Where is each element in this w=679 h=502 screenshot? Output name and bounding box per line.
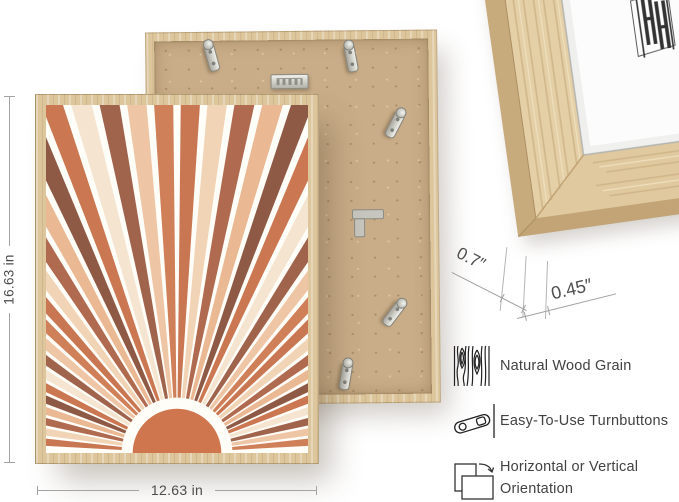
dimension-line [9,313,10,462]
feature-natural-wood-grain: Natural Wood Grain [452,346,678,386]
feature-label: Natural Wood Grain [500,355,672,377]
product-image: 0.7″ 0.45″ 16.63 in 12.63 in [0,0,679,502]
feature-label: Easy-To-Use Turnbuttons [500,410,672,432]
frame-depth-label: 0.7″ [453,243,489,274]
feature-orientation: Horizontal or Vertical Orientation [452,455,678,501]
dimension-line [38,490,139,491]
framed-sunburst-print [35,94,319,464]
dimension-tick [524,312,527,321]
bracket-plate [354,218,365,237]
dimension-tick [316,486,317,495]
frame-corner-closeup [474,0,679,249]
dimension-tick [4,462,15,463]
width-dimension: 12.63 in [37,482,317,498]
depth-dimension-line [452,272,527,311]
feature-list: Natural Wood Grain Easy-To-Use Turnbutto… [452,346,678,502]
corner-bracket-icon [352,209,382,237]
turnbutton-icon [452,403,500,439]
feature-turnbuttons: Easy-To-Use Turnbuttons [452,403,678,439]
feature-label: Horizontal or Vertical Orientation [500,456,672,501]
height-dimension: 16.63 in [1,96,17,463]
wood-grain-icon [452,346,500,386]
art-area [46,105,308,453]
dimension-line [215,490,316,491]
sunburst-artwork [46,105,308,453]
sawtooth-hanger-icon [270,74,308,89]
dimension-tick [547,306,550,315]
orientation-icon [452,455,500,501]
width-value-label: 12.63 in [151,482,203,498]
dimension-line [9,97,10,246]
height-value-label: 16.63 in [2,254,17,304]
